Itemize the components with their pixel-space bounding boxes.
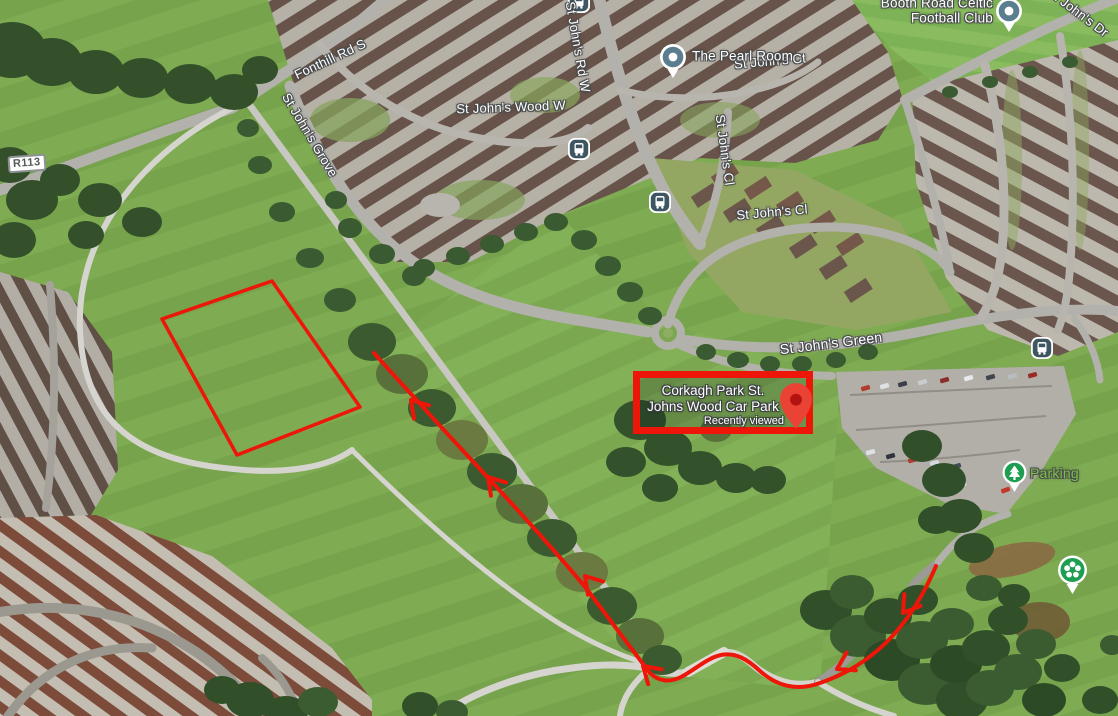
poi-label-parking[interactable]: Parking xyxy=(1030,465,1079,481)
red-map-pin[interactable] xyxy=(780,383,812,429)
destination-name-line2: Johns Wood Car Park xyxy=(642,399,784,415)
flower-pin-garden[interactable] xyxy=(1056,555,1089,595)
poi-label-pearl-room[interactable]: The Pearl Room xyxy=(692,49,793,64)
destination-name-line1: Corkagh Park St. xyxy=(642,383,784,399)
satellite-map-view[interactable]: R113 Fonthill Rd S St John's Grove St Jo… xyxy=(0,0,1118,716)
football-club-line2: Football Club xyxy=(863,11,993,26)
circle-pin-pearl-room[interactable] xyxy=(658,43,688,79)
road-shield-r113: R113 xyxy=(7,154,46,174)
bus-stop-icon[interactable] xyxy=(1030,336,1054,362)
football-club-line1: Booth Road Celtic xyxy=(863,0,993,11)
destination-status: Recently viewed xyxy=(642,415,784,427)
bus-stop-icon[interactable] xyxy=(648,190,672,216)
destination-label[interactable]: Corkagh Park St. Johns Wood Car Park Rec… xyxy=(642,383,784,427)
tree-pin-parking[interactable] xyxy=(1001,460,1028,493)
bus-stop-icon[interactable] xyxy=(567,137,591,163)
circle-pin-football-club[interactable] xyxy=(994,0,1024,33)
poi-label-football-club[interactable]: Booth Road Celtic Football Club xyxy=(863,0,993,26)
